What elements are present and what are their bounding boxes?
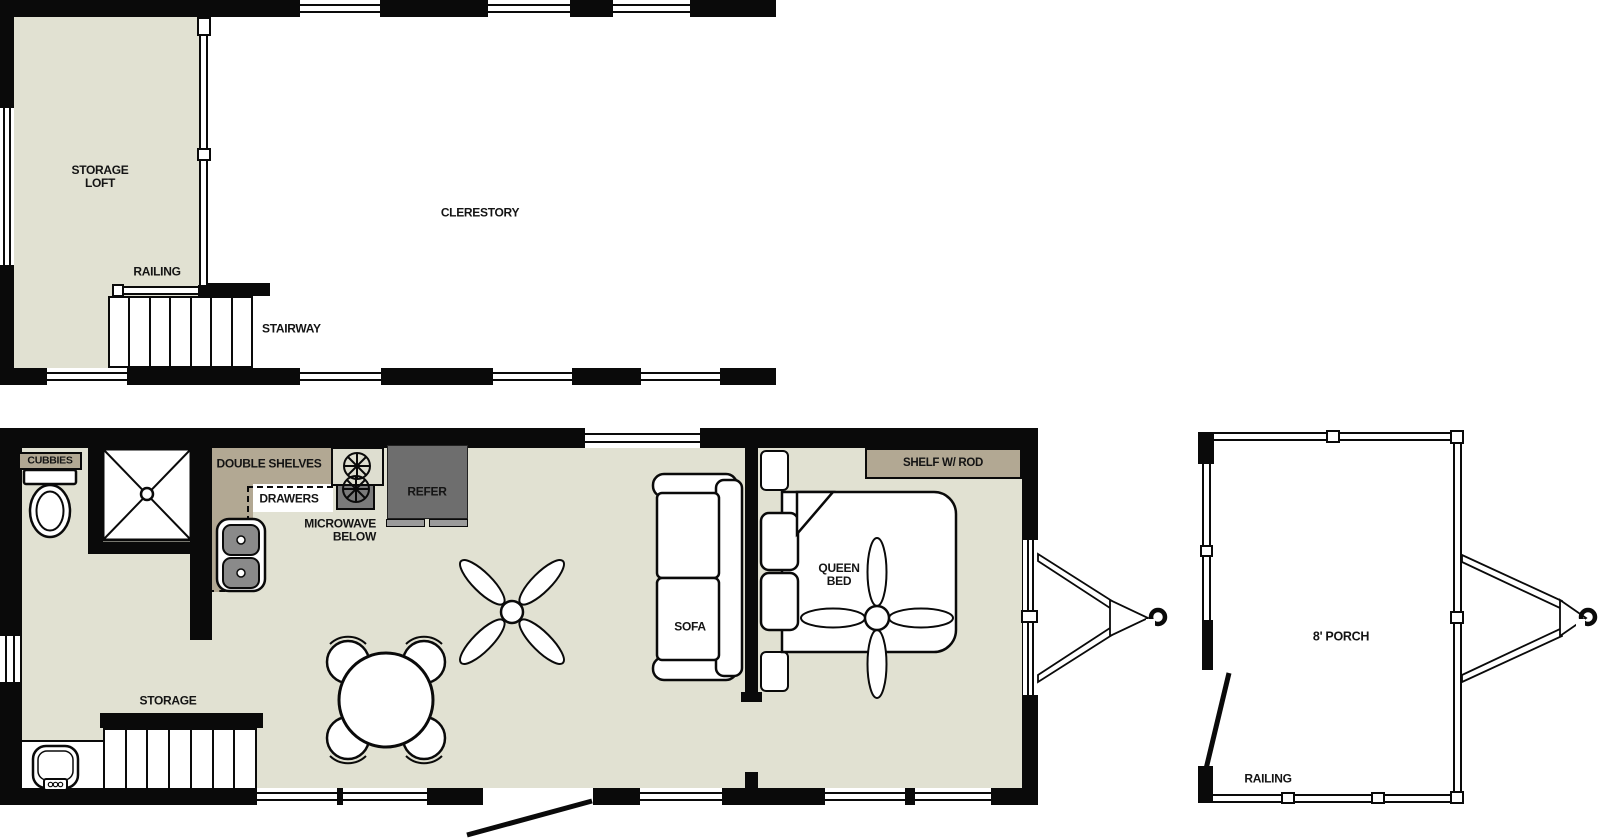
floorplan-canvas: STORAGELOFT RAILING STAIRWAY CLERESTORY [0, 0, 1600, 838]
clerestory-label: CLERESTORY [441, 207, 519, 220]
porch-railing-label: RAILING [1244, 773, 1291, 786]
trailer-hitch-icon [1038, 554, 1165, 682]
toilet-icon [24, 470, 76, 537]
cubbies-label: CUBBIES [27, 455, 72, 466]
entry-door-swing-icon [467, 801, 592, 835]
refer-label: REFER [407, 486, 446, 499]
ceiling-fan-icon [454, 554, 569, 669]
porch-door-swing-icon [1206, 673, 1229, 769]
loft-railing-label: RAILING [133, 266, 180, 279]
porch-label: 8' PORCH [1313, 630, 1369, 644]
kitchen-sink-icon [217, 519, 265, 591]
shelf-rod-label: SHELF W/ ROD [903, 457, 983, 469]
stove-burners-icon [332, 448, 383, 509]
drawers-label: DRAWERS [259, 493, 318, 506]
shower-icon [103, 449, 191, 540]
storage-loft-label: STORAGELOFT [71, 164, 128, 190]
sofa-label: SOFA [674, 621, 705, 634]
storage-label: STORAGE [139, 695, 196, 708]
furniture-overlay [0, 0, 1600, 838]
sofa-icon [653, 474, 742, 680]
dining-table-icon [327, 637, 445, 763]
vanity-sink-icon [33, 746, 78, 790]
queen-bed-label: QUEENBED [818, 562, 859, 588]
stairway-label: STAIRWAY [262, 323, 321, 336]
trailer-hitch-icon [1462, 555, 1595, 682]
double-shelves-label: DOUBLE SHELVES [217, 458, 322, 471]
microwave-label-line2: BELOW [333, 531, 376, 544]
